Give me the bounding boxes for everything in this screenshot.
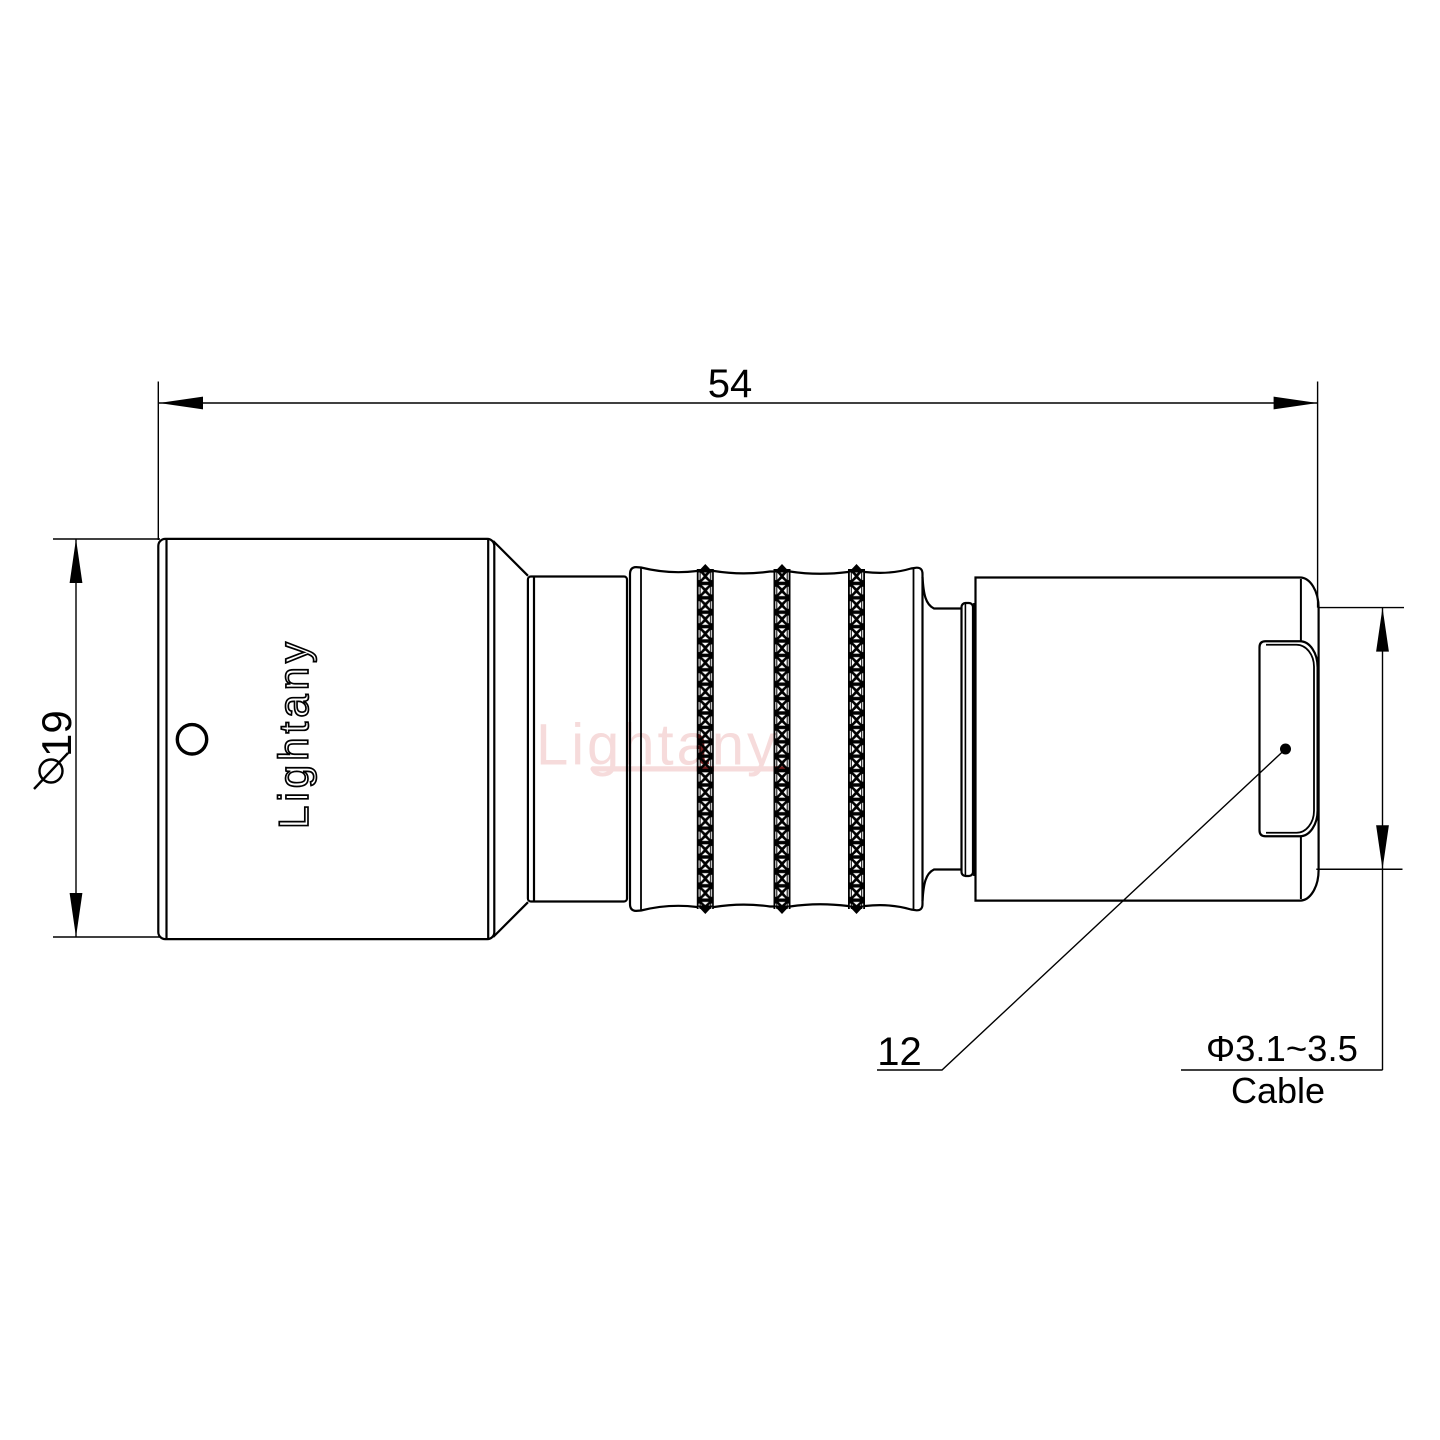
svg-text:19: 19: [33, 710, 80, 757]
svg-text:54: 54: [708, 362, 753, 406]
svg-text:12: 12: [877, 1030, 922, 1074]
svg-text:Φ3.1~3.5: Φ3.1~3.5: [1206, 1028, 1358, 1069]
svg-text:Cable: Cable: [1231, 1070, 1325, 1111]
